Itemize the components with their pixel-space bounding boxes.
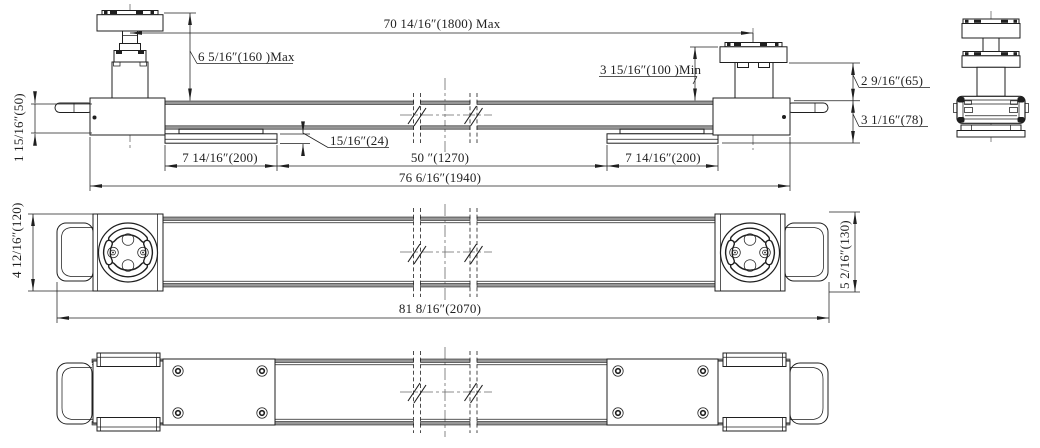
left-handle-rod xyxy=(55,103,93,113)
bottom-left-plate xyxy=(163,359,275,425)
dim-pad-length-right: 7 14/16″(200) xyxy=(625,151,701,164)
right-pad xyxy=(607,129,718,143)
dim-pad-thickness: 15/16″(24) xyxy=(330,134,389,147)
dim-pad-length-left: 7 14/16″(200) xyxy=(182,151,258,164)
bottom-right-bracket xyxy=(718,353,790,431)
left-jack xyxy=(97,11,163,99)
engineering-drawing-canvas: 70 14/16″(1800) Max 6 5/16″(160 )Max 3 1… xyxy=(0,0,1040,448)
right-jack xyxy=(720,43,787,99)
dim-beam-length: 76 6/16″(1940) xyxy=(399,171,481,184)
left-carriage xyxy=(90,98,165,135)
dim-tray-width-left: 4 12/16″(120) xyxy=(10,202,23,278)
dim-overall-span-max: 70 14/16″(1800) Max xyxy=(384,17,501,30)
plan-left-cap xyxy=(57,223,93,281)
beam-rails xyxy=(92,101,788,129)
dim-tray-width-right: 5 2/16″(130) xyxy=(838,220,851,289)
plan-right-cap xyxy=(785,223,828,281)
dim-jack-height-min: 3 15/16″(100 )Min xyxy=(600,63,701,76)
end-view xyxy=(954,11,1029,142)
right-carriage xyxy=(713,98,790,135)
end-beam-section xyxy=(954,96,1029,137)
dim-pad-spacing: 50 ″(1270) xyxy=(411,151,469,164)
drawing-linework xyxy=(0,0,1040,448)
plan-right-swivel xyxy=(715,214,785,291)
carriage-screw-icon xyxy=(782,115,786,119)
bottom-view xyxy=(57,347,828,437)
dim-saddle-height: 2 9/16″(65) xyxy=(861,74,923,87)
plan-left-swivel xyxy=(93,214,163,291)
dim-handle-height: 1 15/16″(50) xyxy=(12,93,25,162)
front-view xyxy=(31,4,930,191)
bottom-right-plate xyxy=(607,359,718,425)
bottom-left-bracket xyxy=(93,353,163,431)
end-jack xyxy=(962,19,1020,96)
dim-overall-length: 81 8/16″(2070) xyxy=(399,302,481,315)
dim-jack-height-max: 6 5/16″(160 )Max xyxy=(198,50,295,63)
bottom-left-cap xyxy=(57,363,92,424)
right-handle-rod xyxy=(787,103,828,113)
carriage-screw-icon xyxy=(93,116,97,120)
left-pad xyxy=(165,129,277,143)
bottom-right-cap xyxy=(790,363,828,424)
dim-frame-height: 3 1/16″(78) xyxy=(861,113,923,126)
